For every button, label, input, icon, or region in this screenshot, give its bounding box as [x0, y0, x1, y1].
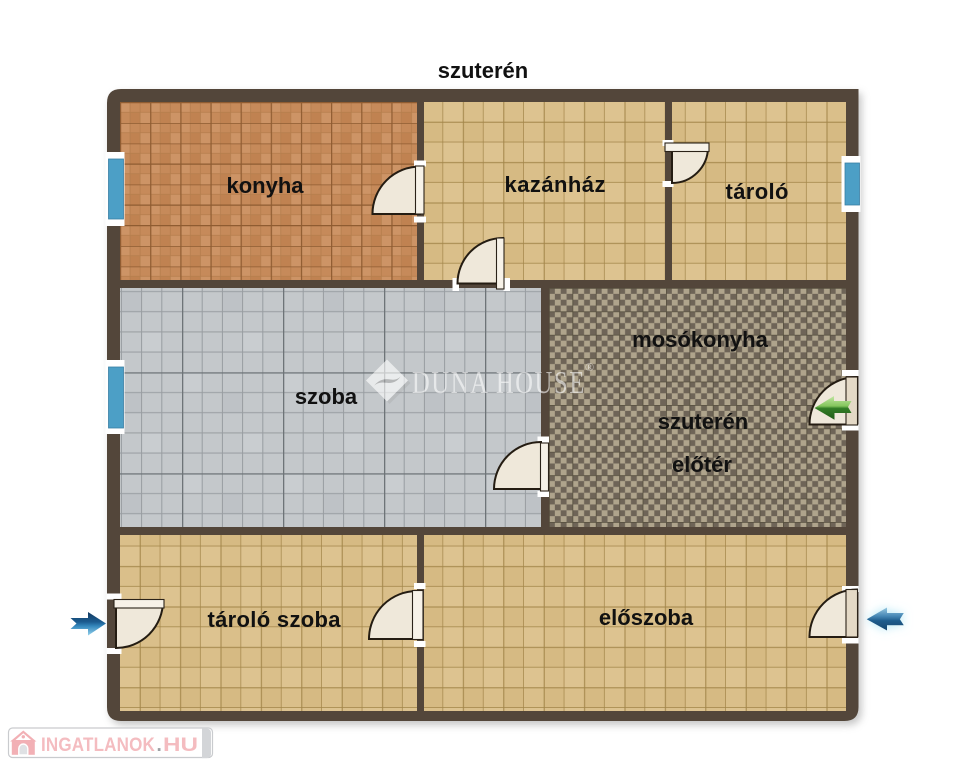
svg-text:DUNA HOUSE: DUNA HOUSE: [412, 364, 586, 400]
svg-text:®: ®: [585, 360, 594, 374]
svg-text:mosókonyha: mosókonyha: [632, 327, 768, 352]
svg-text:előszoba: előszoba: [599, 605, 694, 630]
svg-text:HU: HU: [163, 735, 198, 756]
svg-text:konyha: konyha: [226, 173, 304, 198]
svg-text:kazánház: kazánház: [505, 172, 606, 197]
svg-text:.: .: [157, 735, 162, 756]
svg-text:szoba: szoba: [295, 384, 358, 409]
svg-text:INGATLANOK: INGATLANOK: [41, 735, 155, 756]
svg-text:szuterén: szuterén: [658, 409, 748, 434]
svg-text:tároló szoba: tároló szoba: [208, 607, 342, 632]
svg-text:tároló: tároló: [726, 179, 789, 204]
svg-text:szuterén: szuterén: [438, 58, 528, 83]
svg-text:előtér: előtér: [672, 452, 732, 477]
